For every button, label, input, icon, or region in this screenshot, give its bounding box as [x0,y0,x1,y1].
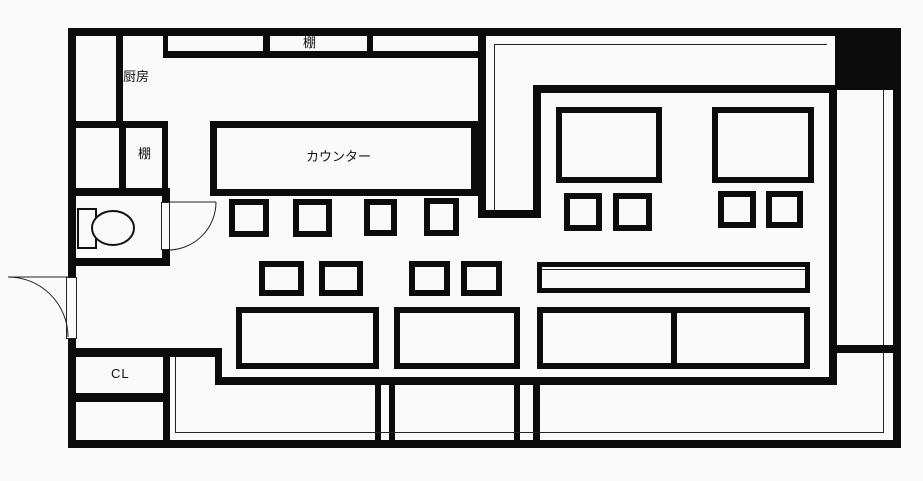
corridor-line [175,432,883,433]
wall [162,196,170,202]
bench-seat [537,262,810,293]
wall [68,348,222,357]
table [236,307,379,369]
counter-stool [229,199,269,237]
wall [68,258,170,266]
wall [829,345,901,353]
wall [478,36,486,218]
seat [766,191,803,228]
door-swing-icon [162,202,217,250]
corridor-line [883,90,884,345]
floor-plan: 棚 厨房 棚 カウンター CL [0,0,923,481]
table [556,107,662,183]
wall [116,36,123,128]
wall [533,85,541,218]
seat [461,261,502,296]
pillar [835,33,893,90]
wall [68,393,170,402]
table [394,307,520,369]
counter-stool [424,198,459,236]
counter-stool [293,199,332,237]
wall-outer-top [68,28,901,36]
table [671,307,810,369]
wall [478,210,537,218]
wall [119,128,126,196]
label-shelf-side: 棚 [138,147,151,161]
door-swing-icon [8,277,77,339]
wall-outer-right [893,28,901,448]
wall-outer-bottom [68,440,901,448]
corridor-line [175,357,176,433]
seat [319,261,363,296]
bench-line [542,269,805,270]
shelf-cabinet-front [163,51,485,58]
corridor-line [494,44,495,212]
wall [162,128,168,196]
table [712,107,814,183]
corridor-line [883,353,884,433]
seat [259,261,304,296]
corridor-line [494,44,827,45]
wall [215,377,837,385]
table [537,307,677,369]
seat [718,191,756,228]
wall [533,85,837,93]
wall [68,188,170,196]
seat [564,193,602,231]
seat [613,193,652,231]
wall [829,85,837,385]
counter-stool [364,199,397,236]
label-kitchen: 厨房 [123,70,149,84]
toilet-icon [78,209,134,248]
label-closet: CL [111,367,130,381]
label-shelf-top: 棚 [303,36,316,50]
wall [68,121,168,128]
seat [409,261,450,296]
wall-outer-left [68,28,76,448]
shelf-divider [367,35,373,55]
shelf-divider [263,35,270,55]
label-counter: カウンター [306,150,371,164]
